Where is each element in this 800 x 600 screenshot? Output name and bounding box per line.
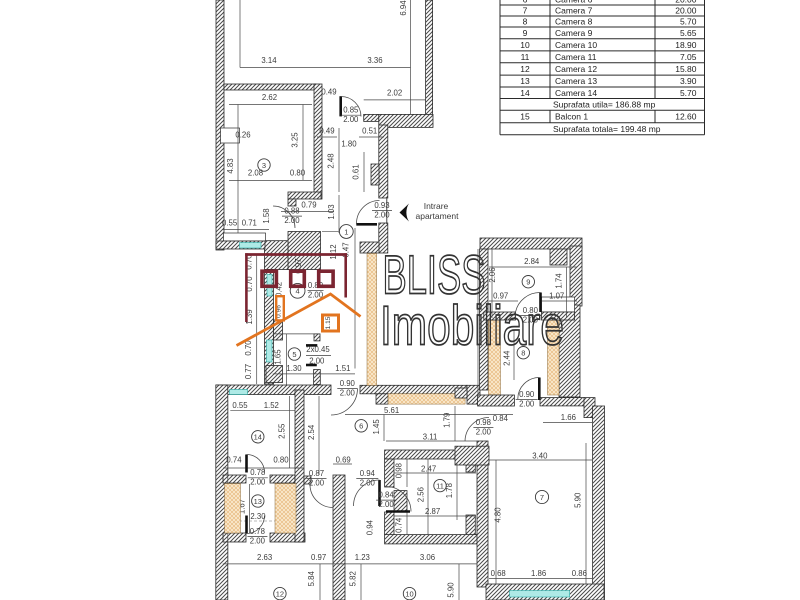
svg-text:1.51: 1.51 xyxy=(335,364,350,373)
svg-text:12: 12 xyxy=(276,589,284,598)
svg-text:3.06: 3.06 xyxy=(420,553,435,562)
svg-text:5.90: 5.90 xyxy=(573,492,582,508)
svg-text:2x0.45: 2x0.45 xyxy=(306,345,330,354)
svg-text:2.00: 2.00 xyxy=(284,216,300,225)
svg-text:2.06: 2.06 xyxy=(488,267,497,282)
svg-text:0.77: 0.77 xyxy=(244,364,253,379)
svg-text:Camera 14: Camera 14 xyxy=(555,88,597,98)
svg-text:0.97: 0.97 xyxy=(311,553,326,562)
svg-text:2.00: 2.00 xyxy=(250,537,266,546)
svg-text:13: 13 xyxy=(254,497,262,506)
svg-text:18.90: 18.90 xyxy=(675,40,697,50)
svg-text:12.60: 12.60 xyxy=(675,112,697,122)
svg-text:3.36: 3.36 xyxy=(367,56,382,65)
svg-text:4.83: 4.83 xyxy=(226,158,235,173)
svg-text:2.48: 2.48 xyxy=(327,153,336,168)
svg-text:14: 14 xyxy=(254,433,262,442)
svg-text:1.74: 1.74 xyxy=(555,273,564,289)
svg-text:1.80: 1.80 xyxy=(341,140,357,149)
svg-text:6: 6 xyxy=(523,0,528,5)
svg-text:0.94: 0.94 xyxy=(366,519,375,535)
svg-text:0.84: 0.84 xyxy=(493,414,509,423)
svg-text:1.23: 1.23 xyxy=(355,553,370,562)
svg-text:2.54: 2.54 xyxy=(307,424,316,440)
svg-text:3.90: 3.90 xyxy=(680,76,697,86)
svg-text:5.90: 5.90 xyxy=(447,582,456,598)
svg-text:3.11: 3.11 xyxy=(423,432,438,441)
svg-text:0.49: 0.49 xyxy=(321,88,336,97)
svg-text:1.15: 1.15 xyxy=(325,316,332,329)
svg-text:5.61: 5.61 xyxy=(384,406,399,415)
svg-text:1.65: 1.65 xyxy=(274,349,283,365)
svg-text:Camera 8: Camera 8 xyxy=(555,17,593,27)
svg-text:0.78: 0.78 xyxy=(250,468,265,477)
svg-text:1.79: 1.79 xyxy=(443,413,452,428)
svg-text:2.63: 2.63 xyxy=(257,553,272,562)
svg-text:2.84: 2.84 xyxy=(524,257,540,266)
svg-text:0.74: 0.74 xyxy=(226,456,242,465)
svg-text:1.03: 1.03 xyxy=(327,204,336,219)
svg-text:Balcon 1: Balcon 1 xyxy=(555,112,588,122)
svg-text:3.40: 3.40 xyxy=(532,452,548,461)
svg-text:0.93: 0.93 xyxy=(374,201,389,210)
svg-text:1.86: 1.86 xyxy=(531,569,546,578)
svg-text:0.98: 0.98 xyxy=(476,418,491,427)
svg-text:5.70: 5.70 xyxy=(680,17,697,27)
svg-text:Suprafata utila= 186.88 mp: Suprafata utila= 186.88 mp xyxy=(553,99,656,109)
svg-text:Camera 9: Camera 9 xyxy=(555,28,593,38)
svg-text:0.26: 0.26 xyxy=(235,131,250,140)
svg-text:12: 12 xyxy=(520,64,530,74)
svg-text:2.30: 2.30 xyxy=(250,512,266,521)
svg-text:0.68: 0.68 xyxy=(491,569,506,578)
svg-text:11: 11 xyxy=(436,481,444,490)
svg-text:0.61: 0.61 xyxy=(352,164,361,179)
svg-text:7: 7 xyxy=(540,493,544,502)
svg-text:Camera 10: Camera 10 xyxy=(555,40,597,50)
svg-text:3.14: 3.14 xyxy=(261,56,277,65)
svg-text:0.80: 0.80 xyxy=(290,169,306,178)
svg-text:0.69: 0.69 xyxy=(336,456,351,465)
svg-text:2.00: 2.00 xyxy=(343,115,359,124)
svg-text:10: 10 xyxy=(520,40,530,50)
svg-text:0.87: 0.87 xyxy=(309,469,324,478)
svg-text:0.90: 0.90 xyxy=(340,379,356,388)
svg-text:2.87: 2.87 xyxy=(425,507,440,516)
svg-text:2.00: 2.00 xyxy=(360,479,376,488)
svg-text:0.94: 0.94 xyxy=(360,469,376,478)
svg-text:2.62: 2.62 xyxy=(262,93,277,102)
svg-text:2.55: 2.55 xyxy=(278,423,287,439)
svg-text:Camera 13: Camera 13 xyxy=(555,76,597,86)
svg-text:11: 11 xyxy=(521,52,530,62)
svg-text:Camera 11: Camera 11 xyxy=(555,52,597,62)
svg-text:5.82: 5.82 xyxy=(349,571,358,586)
svg-text:6: 6 xyxy=(359,422,363,431)
svg-text:0.79: 0.79 xyxy=(301,201,316,210)
svg-text:1.30: 1.30 xyxy=(286,364,302,373)
svg-text:2.00: 2.00 xyxy=(374,211,390,220)
svg-text:5: 5 xyxy=(292,350,296,359)
svg-text:0.74: 0.74 xyxy=(394,517,403,533)
svg-text:0.55: 0.55 xyxy=(232,401,248,410)
svg-text:10: 10 xyxy=(405,589,413,598)
svg-text:0.51: 0.51 xyxy=(362,127,377,136)
svg-text:0.90: 0.90 xyxy=(519,390,535,399)
svg-text:Suprafata totala= 199.48 mp: Suprafata totala= 199.48 mp xyxy=(553,124,661,134)
svg-text:Camera 12: Camera 12 xyxy=(555,64,597,74)
svg-text:1.52: 1.52 xyxy=(264,401,279,410)
svg-text:2.00: 2.00 xyxy=(476,428,492,437)
svg-text:7.05: 7.05 xyxy=(680,52,697,62)
svg-text:9: 9 xyxy=(526,278,530,287)
svg-text:Camera 7: Camera 7 xyxy=(555,6,593,16)
svg-text:0.78: 0.78 xyxy=(250,527,265,536)
svg-text:7: 7 xyxy=(523,6,528,16)
svg-text:2.00: 2.00 xyxy=(250,478,266,487)
svg-text:0.98: 0.98 xyxy=(394,463,403,478)
svg-text:15: 15 xyxy=(520,112,530,122)
svg-text:8: 8 xyxy=(523,17,528,27)
svg-text:0.88: 0.88 xyxy=(284,207,299,216)
svg-text:0.85: 0.85 xyxy=(343,106,359,115)
svg-text:3.25: 3.25 xyxy=(291,132,300,148)
svg-text:2.00: 2.00 xyxy=(309,479,325,488)
svg-text:9: 9 xyxy=(523,28,528,38)
svg-text:Intrare: Intrare xyxy=(424,201,449,211)
svg-text:14: 14 xyxy=(520,88,530,98)
svg-text:2.00: 2.00 xyxy=(309,356,325,365)
svg-text:2.08: 2.08 xyxy=(248,169,263,178)
svg-text:1.45: 1.45 xyxy=(372,419,381,435)
svg-text:1.66: 1.66 xyxy=(561,413,576,422)
svg-text:5.70: 5.70 xyxy=(680,88,697,98)
svg-text:1: 1 xyxy=(344,227,348,236)
svg-text:2.47: 2.47 xyxy=(421,464,436,473)
svg-text:0.71: 0.71 xyxy=(242,219,257,228)
svg-text:1.58: 1.58 xyxy=(262,208,271,223)
svg-text:2.00: 2.00 xyxy=(340,388,356,397)
svg-text:2.02: 2.02 xyxy=(387,89,402,98)
svg-text:2.56: 2.56 xyxy=(416,487,425,502)
svg-text:15.80: 15.80 xyxy=(675,64,697,74)
svg-text:0.49: 0.49 xyxy=(319,127,334,136)
svg-text:1.78: 1.78 xyxy=(445,483,454,498)
svg-text:Imobiliare: Imobiliare xyxy=(380,295,564,357)
svg-text:1.12: 1.12 xyxy=(329,244,338,259)
svg-text:5.84: 5.84 xyxy=(307,571,316,587)
svg-text:0.80: 0.80 xyxy=(273,456,289,465)
svg-text:0.55: 0.55 xyxy=(222,219,238,228)
svg-text:20.00: 20.00 xyxy=(675,0,697,5)
svg-text:6.94: 6.94 xyxy=(399,0,408,16)
svg-text:2.00: 2.00 xyxy=(519,400,535,409)
svg-text:13: 13 xyxy=(520,76,530,86)
svg-text:Camera 6: Camera 6 xyxy=(555,0,593,5)
svg-text:2.00: 2.00 xyxy=(379,500,395,509)
svg-text:0.84: 0.84 xyxy=(379,491,395,500)
svg-text:5.65: 5.65 xyxy=(680,28,697,38)
svg-text:0.86: 0.86 xyxy=(572,569,587,578)
svg-text:apartament: apartament xyxy=(416,211,460,221)
svg-text:20.00: 20.00 xyxy=(675,6,697,16)
svg-text:4.80: 4.80 xyxy=(493,507,502,523)
